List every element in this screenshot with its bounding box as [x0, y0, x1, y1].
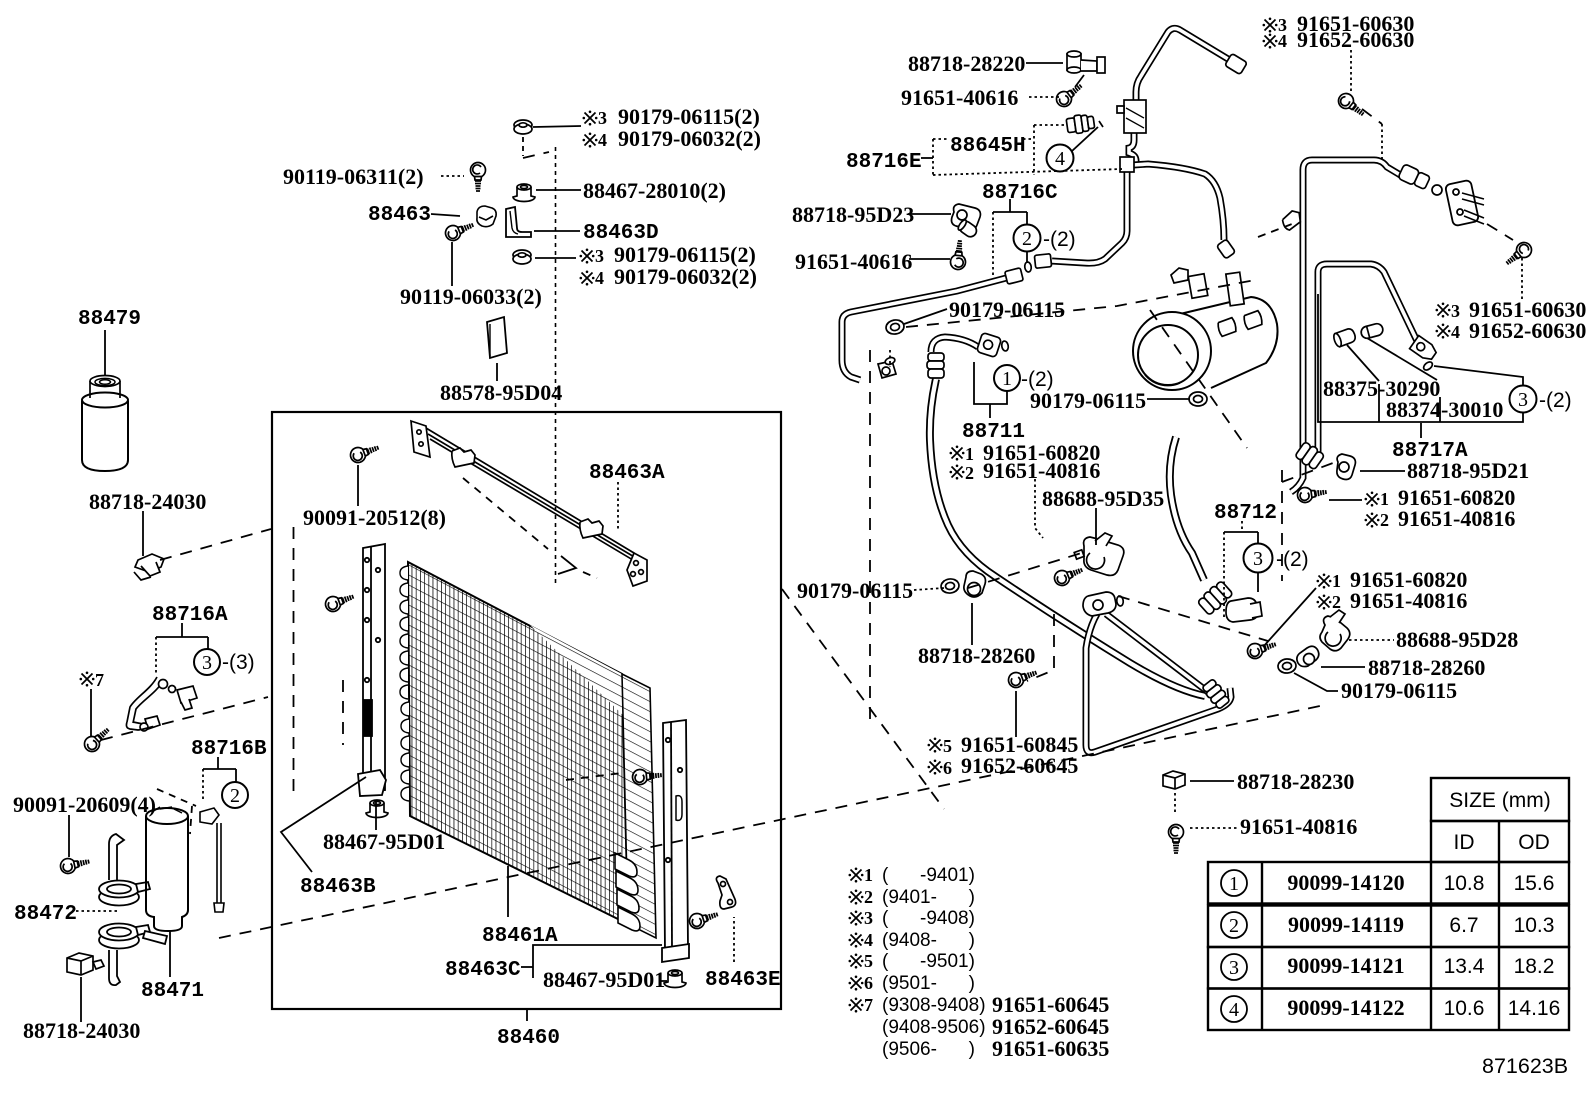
svg-text:10.3: 10.3	[1514, 914, 1555, 937]
svg-text:90099-14121: 90099-14121	[1287, 953, 1404, 978]
svg-text:90179-06115: 90179-06115	[1341, 678, 1457, 703]
svg-text:1: 1	[1332, 571, 1341, 591]
svg-text:88467-95D01: 88467-95D01	[543, 967, 665, 992]
svg-text:10.6: 10.6	[1444, 997, 1485, 1020]
svg-text:(9408-9506): (9408-9506)	[882, 1017, 986, 1038]
svg-text:88711: 88711	[962, 421, 1025, 444]
svg-text:90179-06115: 90179-06115	[1030, 388, 1146, 413]
svg-text:7: 7	[95, 670, 104, 690]
svg-text:-(2): -(2)	[1276, 548, 1309, 571]
svg-text:90119-06033(2): 90119-06033(2)	[400, 284, 542, 309]
svg-text:88461A: 88461A	[482, 925, 558, 948]
svg-text:90091-20609(4): 90091-20609(4)	[13, 792, 156, 817]
svg-text:91651-40616: 91651-40616	[795, 249, 912, 274]
svg-text:88463: 88463	[368, 204, 431, 227]
svg-text:OD: OD	[1518, 831, 1550, 854]
svg-text:3: 3	[595, 246, 604, 266]
svg-text:1: 1	[1002, 368, 1012, 390]
svg-text:88716A: 88716A	[152, 604, 228, 627]
svg-text:3: 3	[598, 108, 607, 128]
svg-text:91652-60645: 91652-60645	[961, 753, 1078, 778]
svg-text:3: 3	[1229, 957, 1239, 979]
svg-text:90179-06032(2): 90179-06032(2)	[618, 126, 761, 151]
svg-text:(9408- ): (9408- )	[882, 930, 975, 951]
svg-text:91651-40816: 91651-40816	[1398, 506, 1515, 531]
svg-text:15.6: 15.6	[1514, 872, 1555, 895]
svg-text:90099-14119: 90099-14119	[1288, 912, 1404, 937]
svg-text:2: 2	[1022, 228, 1032, 250]
svg-text:(9506- ): (9506- )	[882, 1039, 975, 1060]
svg-text:88463E: 88463E	[705, 969, 781, 992]
svg-text:88645H: 88645H	[950, 135, 1026, 158]
svg-text:1: 1	[864, 865, 873, 885]
svg-text:4: 4	[598, 130, 607, 150]
svg-text:1: 1	[1229, 873, 1239, 895]
svg-text:90179-06115: 90179-06115	[797, 578, 913, 603]
svg-text:90119-06311(2): 90119-06311(2)	[283, 164, 424, 189]
svg-text:13.4: 13.4	[1444, 955, 1485, 978]
svg-text:88716B: 88716B	[191, 738, 267, 761]
svg-text:88718-24030: 88718-24030	[23, 1018, 140, 1043]
svg-text:88578-95D04: 88578-95D04	[440, 380, 562, 405]
svg-text:6: 6	[943, 758, 952, 778]
svg-text:4: 4	[1278, 31, 1287, 51]
svg-text:4: 4	[864, 930, 873, 950]
svg-text:88460: 88460	[497, 1027, 560, 1050]
svg-text:18.2: 18.2	[1514, 955, 1555, 978]
svg-text:-(2): -(2)	[1539, 389, 1572, 412]
svg-text:88717A: 88717A	[1392, 440, 1468, 463]
svg-text:91651-40816: 91651-40816	[983, 458, 1100, 483]
svg-text:3: 3	[864, 908, 873, 928]
svg-text:88471: 88471	[141, 980, 204, 1003]
svg-text:88718-28260: 88718-28260	[1368, 655, 1485, 680]
svg-text:3: 3	[1451, 301, 1460, 321]
svg-text:14.16: 14.16	[1508, 997, 1561, 1020]
svg-text:88718-28260: 88718-28260	[918, 643, 1035, 668]
svg-text:SIZE (mm): SIZE (mm)	[1449, 789, 1550, 812]
svg-text:3: 3	[202, 652, 212, 674]
svg-text:88463B: 88463B	[300, 876, 376, 899]
svg-text:2: 2	[864, 887, 873, 907]
svg-text:88463A: 88463A	[589, 462, 665, 485]
svg-text:91651-60635: 91651-60635	[992, 1036, 1109, 1061]
svg-text:1: 1	[1380, 489, 1389, 509]
svg-text:( -9401): ( -9401)	[882, 865, 975, 886]
svg-text:88716C: 88716C	[982, 182, 1058, 205]
svg-text:871623B: 871623B	[1482, 1054, 1568, 1078]
svg-text:10.8: 10.8	[1444, 872, 1485, 895]
svg-text:4: 4	[1451, 322, 1460, 342]
svg-text:-(2): -(2)	[1021, 368, 1054, 391]
svg-text:91651-40816: 91651-40816	[1350, 588, 1467, 613]
svg-text:3: 3	[1518, 389, 1528, 411]
svg-text:(9308-9408): (9308-9408)	[882, 995, 986, 1016]
svg-text:88467-95D01: 88467-95D01	[323, 829, 445, 854]
svg-text:3: 3	[1253, 548, 1263, 570]
svg-text:5: 5	[864, 951, 873, 971]
svg-text:(9501- ): (9501- )	[882, 973, 975, 994]
svg-text:88718-24030: 88718-24030	[89, 489, 206, 514]
svg-text:88718-95D23: 88718-95D23	[792, 202, 914, 227]
svg-text:88463D: 88463D	[583, 222, 659, 245]
svg-text:2: 2	[1332, 592, 1341, 612]
svg-text:90179-06115: 90179-06115	[949, 297, 1065, 322]
svg-text:( -9501): ( -9501)	[882, 951, 975, 972]
svg-text:88712: 88712	[1214, 502, 1277, 525]
svg-text:88718-28230: 88718-28230	[1237, 769, 1354, 794]
svg-text:4: 4	[1055, 148, 1065, 170]
svg-text:88479: 88479	[78, 308, 141, 331]
svg-text:88688-95D35: 88688-95D35	[1042, 486, 1164, 511]
svg-text:7: 7	[864, 995, 873, 1015]
svg-text:91651-40816: 91651-40816	[1240, 814, 1357, 839]
svg-text:ID: ID	[1454, 831, 1475, 854]
svg-text:( -9408): ( -9408)	[882, 908, 975, 929]
svg-text:(9401- ): (9401- )	[882, 887, 975, 908]
svg-text:90179-06032(2): 90179-06032(2)	[614, 264, 757, 289]
svg-text:4: 4	[1229, 999, 1239, 1021]
svg-text:2: 2	[1229, 915, 1239, 937]
svg-text:88374-30010: 88374-30010	[1386, 397, 1503, 422]
svg-text:88718-28220: 88718-28220	[908, 51, 1025, 76]
svg-text:88467-28010(2): 88467-28010(2)	[583, 178, 726, 203]
svg-text:1: 1	[965, 444, 974, 464]
svg-text:88688-95D28: 88688-95D28	[1396, 627, 1518, 652]
svg-text:2: 2	[965, 463, 974, 483]
svg-text:4: 4	[595, 268, 604, 288]
svg-text:90099-14120: 90099-14120	[1287, 870, 1404, 895]
svg-text:88716E: 88716E	[846, 151, 922, 174]
svg-text:91652-60630: 91652-60630	[1297, 27, 1414, 52]
svg-text:6: 6	[864, 973, 873, 993]
svg-text:-(2): -(2)	[1043, 228, 1076, 251]
svg-text:88472: 88472	[14, 903, 77, 926]
svg-text:5: 5	[943, 736, 952, 756]
svg-text:90091-20512(8): 90091-20512(8)	[303, 505, 446, 530]
svg-text:6.7: 6.7	[1449, 914, 1478, 937]
svg-text:90099-14122: 90099-14122	[1287, 995, 1404, 1020]
svg-text:2: 2	[1380, 510, 1389, 530]
svg-text:88463C: 88463C	[445, 959, 521, 982]
svg-text:91651-40616: 91651-40616	[901, 85, 1018, 110]
svg-text:-(3): -(3)	[222, 651, 255, 674]
svg-text:91652-60630: 91652-60630	[1469, 318, 1586, 343]
svg-text:2: 2	[230, 785, 240, 807]
